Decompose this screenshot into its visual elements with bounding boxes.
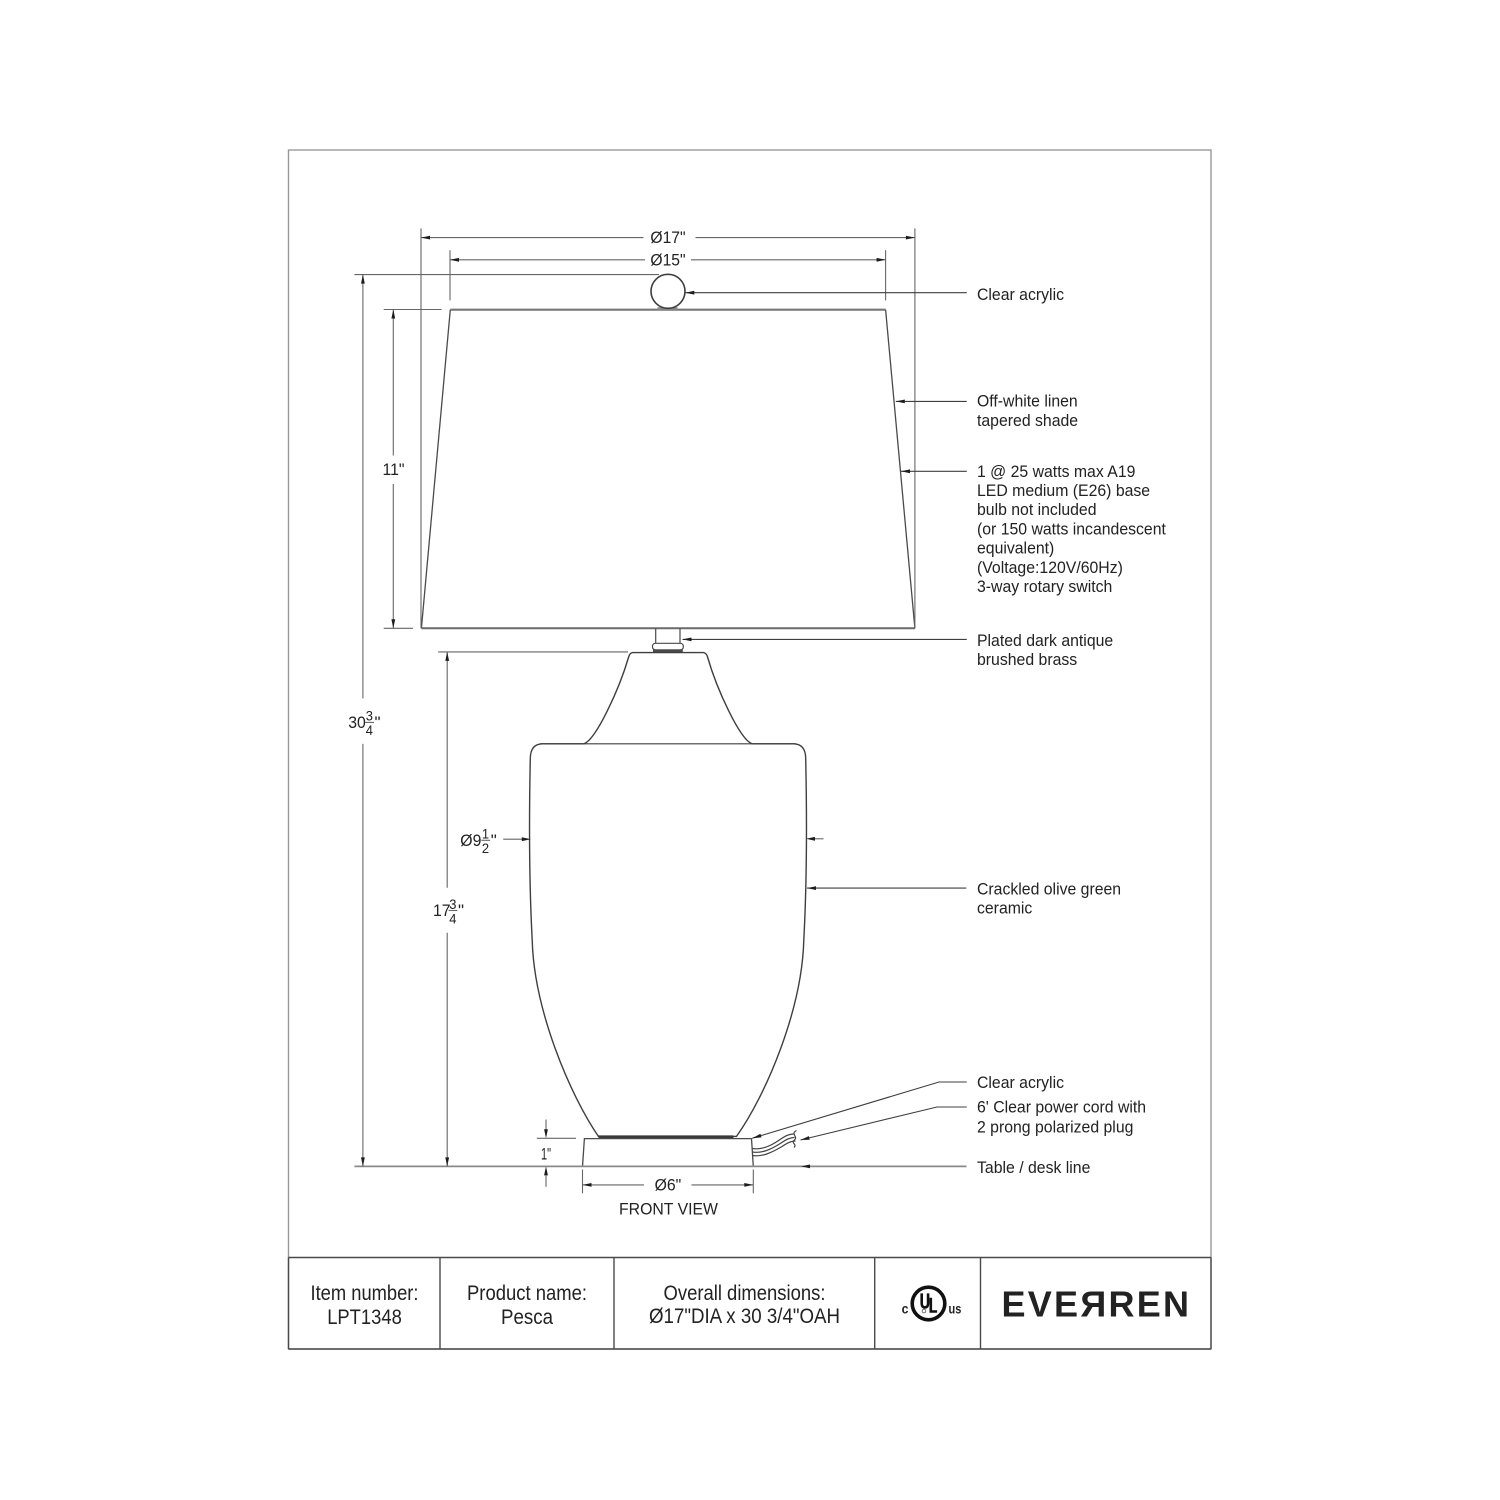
svg-text:c: c: [902, 1301, 909, 1317]
svg-text:2 prong polarized plug: 2 prong polarized plug: [977, 1118, 1133, 1137]
svg-text:": ": [491, 831, 497, 850]
svg-text:11": 11": [383, 460, 405, 479]
svg-text:Clear acrylic: Clear acrylic: [977, 285, 1064, 304]
svg-text:us: us: [949, 1301, 962, 1317]
svg-text:4: 4: [449, 910, 456, 926]
svg-text:Table / desk line: Table / desk line: [977, 1158, 1090, 1177]
svg-text:Clear acrylic: Clear acrylic: [977, 1073, 1064, 1092]
svg-text:Item number:: Item number:: [311, 1282, 419, 1305]
svg-text:": ": [458, 901, 464, 920]
svg-text:1 @ 25 watts max A19: 1 @ 25 watts max A19: [977, 462, 1135, 481]
svg-text:6' Clear power cord with: 6' Clear power cord with: [977, 1098, 1146, 1117]
svg-text:30: 30: [348, 713, 366, 732]
svg-text:(Voltage:120V/60Hz): (Voltage:120V/60Hz): [977, 558, 1123, 577]
svg-text:Ø6": Ø6": [655, 1176, 682, 1195]
svg-text:equivalent): equivalent): [977, 539, 1054, 558]
svg-text:Off-white linen: Off-white linen: [977, 391, 1078, 410]
svg-text:Ø17": Ø17": [650, 228, 685, 247]
svg-text:4: 4: [366, 722, 373, 738]
svg-text:Ø17"DIA x 30 3/4"OAH: Ø17"DIA x 30 3/4"OAH: [649, 1305, 840, 1328]
svg-text:Pesca: Pesca: [501, 1306, 553, 1329]
svg-text:Ø9: Ø9: [460, 831, 481, 850]
svg-text:1": 1": [541, 1144, 551, 1163]
svg-text:17: 17: [433, 901, 451, 920]
svg-text:ceramic: ceramic: [977, 899, 1033, 918]
svg-text:Ø15": Ø15": [650, 250, 685, 269]
svg-text:Crackled olive green: Crackled olive green: [977, 880, 1121, 899]
svg-text:Overall dimensions:: Overall dimensions:: [664, 1282, 826, 1305]
svg-text:(or 150 watts incandescent: (or 150 watts incandescent: [977, 519, 1166, 538]
svg-text:2: 2: [482, 840, 489, 856]
svg-text:bulb not included: bulb not included: [977, 500, 1097, 519]
svg-text:LED medium (E26) base: LED medium (E26) base: [977, 481, 1150, 500]
svg-text:tapered shade: tapered shade: [977, 411, 1078, 430]
svg-text:Plated dark antique: Plated dark antique: [977, 631, 1113, 650]
svg-text:3-way rotary switch: 3-way rotary switch: [977, 577, 1112, 596]
svg-text:LPT1348: LPT1348: [327, 1306, 402, 1329]
svg-text:Product name:: Product name:: [467, 1282, 587, 1305]
svg-text:brushed brass: brushed brass: [977, 650, 1077, 669]
svg-text:FRONT VIEW: FRONT VIEW: [619, 1199, 718, 1218]
svg-text:": ": [375, 713, 381, 732]
